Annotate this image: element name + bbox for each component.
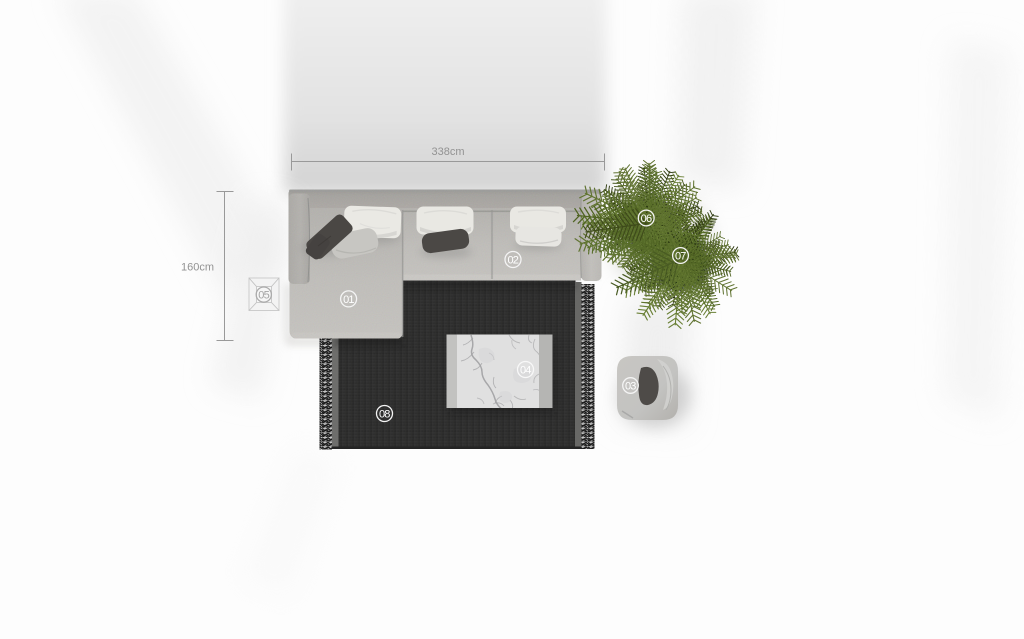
svg-text:04: 04: [520, 364, 531, 376]
svg-text:02: 02: [507, 254, 518, 266]
svg-text:08: 08: [379, 408, 390, 420]
svg-text:338cm: 338cm: [431, 146, 464, 158]
svg-text:07: 07: [675, 250, 686, 262]
svg-text:06: 06: [641, 213, 652, 225]
svg-text:01: 01: [343, 294, 354, 306]
svg-text:160cm: 160cm: [181, 262, 214, 274]
svg-text:03: 03: [625, 380, 636, 392]
svg-text:05: 05: [258, 289, 269, 301]
